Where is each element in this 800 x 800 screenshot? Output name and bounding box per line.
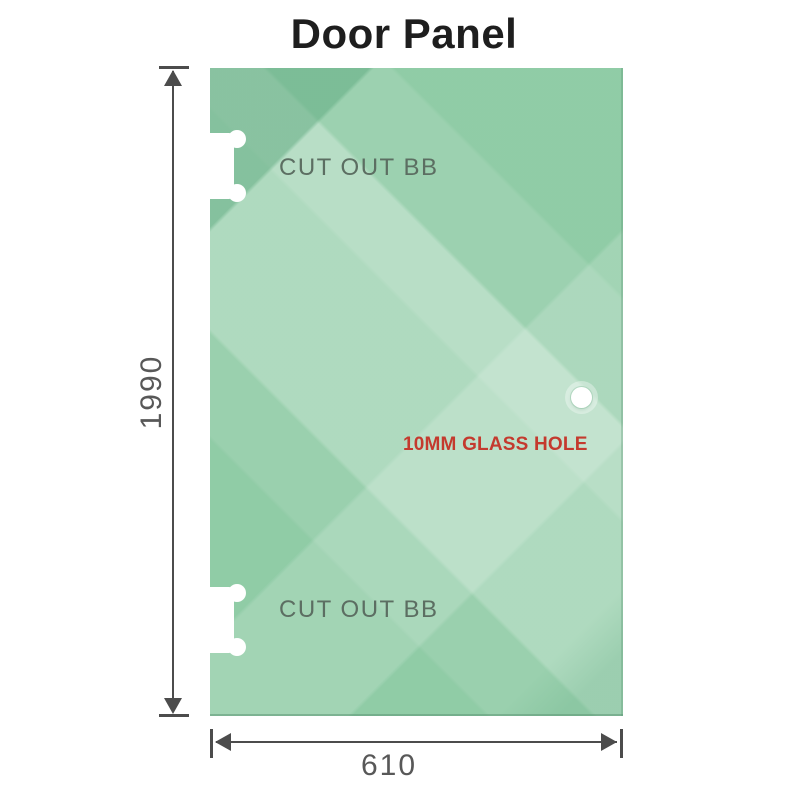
cutout-bump-bottom bbox=[228, 184, 246, 202]
dim-line-horizontal bbox=[216, 741, 617, 743]
dim-tick-right bbox=[620, 729, 623, 758]
door-panel-diagram: Door Panel CUT OUT BB CUT OUT BB 10MM GL… bbox=[0, 0, 800, 800]
dim-tick-left bbox=[210, 729, 213, 758]
arrow-left-icon bbox=[215, 733, 231, 751]
dim-tick-top bbox=[159, 66, 189, 69]
cutout-bump-bottom bbox=[228, 638, 246, 656]
width-value-label: 610 bbox=[339, 750, 439, 782]
page-title: Door Panel bbox=[4, 10, 800, 58]
cutout-top-label: CUT OUT BB bbox=[279, 152, 438, 184]
dim-line-vertical bbox=[172, 71, 174, 701]
arrow-right-icon bbox=[601, 733, 617, 751]
cutout-bump-top bbox=[228, 584, 246, 602]
arrow-up-icon bbox=[164, 70, 182, 86]
glass-hole bbox=[571, 387, 592, 408]
cutout-bottom-label: CUT OUT BB bbox=[279, 594, 438, 626]
glass-hole-label: 10MM GLASS HOLE bbox=[403, 434, 575, 456]
arrow-down-icon bbox=[164, 698, 182, 714]
height-value-label: 1990 bbox=[136, 322, 168, 462]
cutout-bump-top bbox=[228, 130, 246, 148]
dim-tick-bottom bbox=[159, 714, 189, 717]
